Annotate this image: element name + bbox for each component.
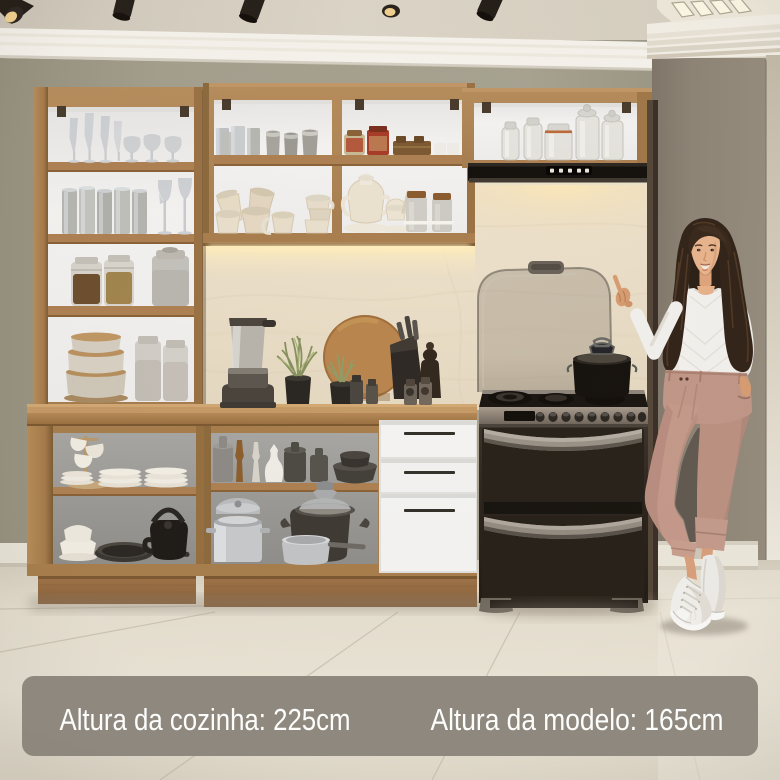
- svg-text:Altura da cozinha: 225cm: Altura da cozinha: 225cm: [60, 702, 351, 737]
- svg-text:Altura da modelo: 165cm: Altura da modelo: 165cm: [431, 702, 724, 737]
